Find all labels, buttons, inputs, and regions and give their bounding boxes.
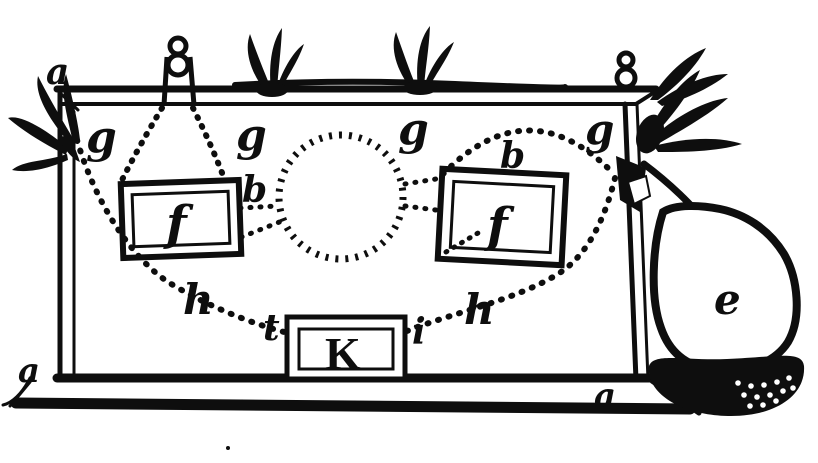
right-post-finial <box>617 53 635 87</box>
label-a-base-right: a <box>594 376 616 416</box>
cone-right-dotted <box>193 108 224 178</box>
leaf-icon <box>654 139 742 152</box>
label-g-post-left: g <box>86 112 117 163</box>
engraving-figure: a g g g g b b f f h h t i K a a e <box>0 0 818 463</box>
connector-right-lower <box>405 206 436 210</box>
flask-neck <box>164 38 194 105</box>
label-g-rail-left: g <box>236 110 267 161</box>
label-g-rail-right: g <box>398 104 429 155</box>
flask-knob-lower <box>168 55 188 75</box>
label-a-bottom-left: a <box>18 351 40 391</box>
label-i-key-right: i <box>412 311 426 353</box>
finial-knob-upper <box>619 53 633 67</box>
engraving-canvas: a g g g g b b f f h h t i K a a e <box>0 0 818 463</box>
right-post-outer <box>625 104 636 380</box>
connector-right-upper <box>405 179 436 184</box>
foliage-right-post <box>631 48 742 157</box>
flask-knob-upper <box>170 38 186 54</box>
base-plinth <box>16 403 690 409</box>
label-a-top-left: a <box>46 51 69 93</box>
dotted-globe <box>279 135 403 259</box>
label-h-chain-left: h <box>183 275 214 324</box>
foliage-stem <box>256 83 288 97</box>
label-K-key-box: K <box>325 328 361 379</box>
label-b-arc: b <box>500 135 525 177</box>
label-t-key-left: t <box>263 307 280 349</box>
finial-knob-lower <box>617 69 635 87</box>
dotted-cone <box>122 108 224 180</box>
label-e-gourd: e <box>714 275 741 324</box>
label-g-post-right: g <box>585 105 614 154</box>
label-h-chain-right: h <box>464 285 495 334</box>
cone-left-dotted <box>122 108 162 180</box>
foliage-stem <box>403 81 437 95</box>
label-b-junction: b <box>242 169 267 211</box>
ink-speck <box>226 446 230 450</box>
flask-neck-right <box>190 57 194 105</box>
